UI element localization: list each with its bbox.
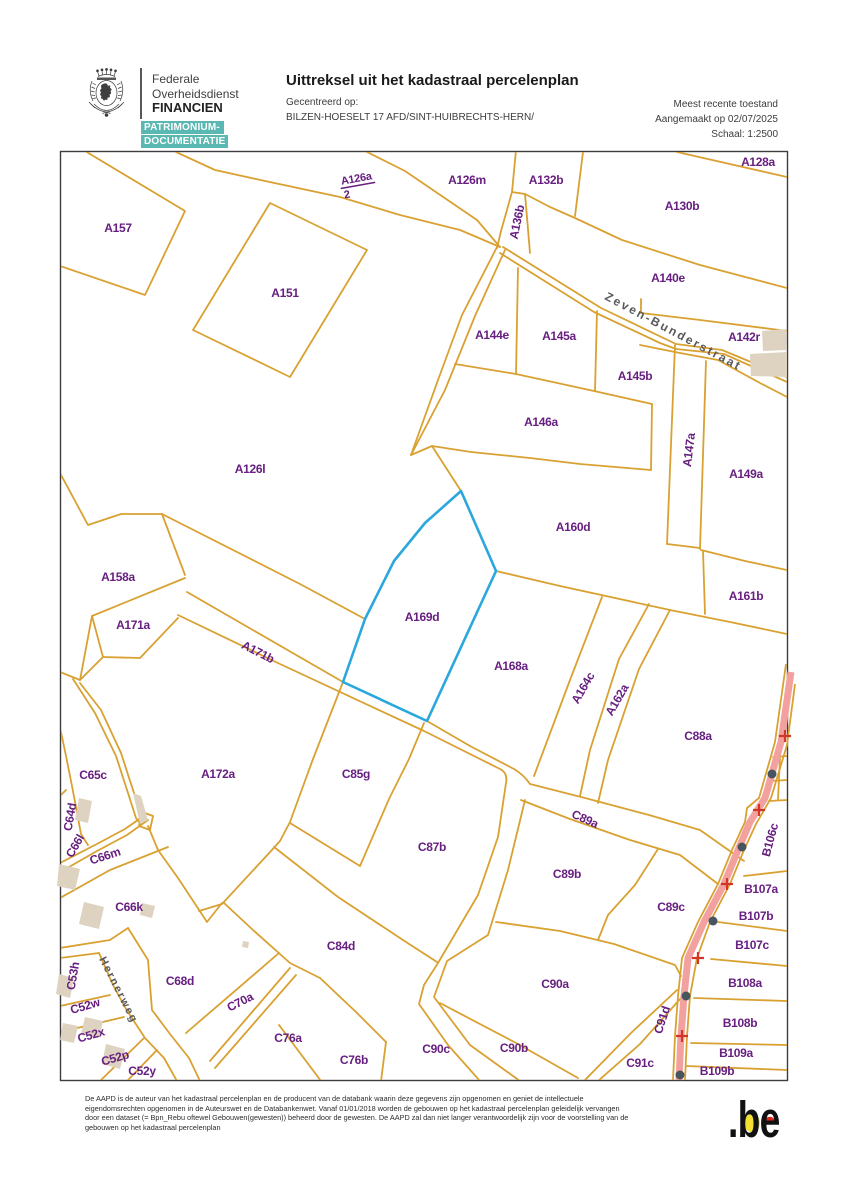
svg-text:A128a: A128a xyxy=(741,155,775,169)
svg-text:C91c: C91c xyxy=(626,1056,654,1070)
svg-text:C68d: C68d xyxy=(166,974,194,988)
svg-text:A168a: A168a xyxy=(494,659,528,673)
svg-text:B109b: B109b xyxy=(700,1064,735,1078)
svg-text:C90b: C90b xyxy=(500,1041,528,1055)
svg-text:B108b: B108b xyxy=(723,1016,758,1030)
svg-text:A130b: A130b xyxy=(665,199,700,213)
svg-text:C89b: C89b xyxy=(553,867,581,881)
svg-text:B108a: B108a xyxy=(728,976,762,990)
svg-text:A171a: A171a xyxy=(116,618,150,632)
svg-text:A132b: A132b xyxy=(529,173,564,187)
svg-text:C89c: C89c xyxy=(657,900,685,914)
svg-text:C76a: C76a xyxy=(274,1031,302,1045)
svg-text:B107c: B107c xyxy=(735,938,769,952)
svg-text:A126l: A126l xyxy=(235,462,266,476)
svg-text:A172a: A172a xyxy=(201,767,235,781)
svg-text:A157: A157 xyxy=(104,221,132,235)
svg-text:C76b: C76b xyxy=(340,1053,368,1067)
svg-text:A142r: A142r xyxy=(728,330,760,344)
svg-text:.be: .be xyxy=(728,1096,780,1146)
svg-text:A151: A151 xyxy=(271,286,299,300)
svg-text:A149a: A149a xyxy=(729,467,763,481)
svg-text:A146a: A146a xyxy=(524,415,558,429)
svg-text:C84d: C84d xyxy=(327,939,355,953)
svg-text:C88a: C88a xyxy=(684,729,712,743)
svg-text:A126m: A126m xyxy=(448,173,486,187)
svg-text:A169d: A169d xyxy=(405,610,440,624)
svg-text:A161b: A161b xyxy=(729,589,764,603)
svg-text:C52y: C52y xyxy=(128,1064,156,1078)
svg-text:B107b: B107b xyxy=(739,909,774,923)
svg-text:C90a: C90a xyxy=(541,977,569,991)
svg-text:A160d: A160d xyxy=(556,520,591,534)
svg-text:A140e: A140e xyxy=(651,271,685,285)
svg-text:C85g: C85g xyxy=(342,767,370,781)
svg-text:A145b: A145b xyxy=(618,369,653,383)
svg-text:B107a: B107a xyxy=(744,882,778,896)
svg-text:B109a: B109a xyxy=(719,1046,753,1060)
svg-text:C65c: C65c xyxy=(79,768,107,782)
svg-text:A158a: A158a xyxy=(101,570,135,584)
svg-text:A144e: A144e xyxy=(475,328,509,342)
svg-text:C90c: C90c xyxy=(422,1042,450,1056)
svg-text:C87b: C87b xyxy=(418,840,446,854)
svg-text:C66k: C66k xyxy=(115,900,143,914)
svg-text:A145a: A145a xyxy=(542,329,576,343)
